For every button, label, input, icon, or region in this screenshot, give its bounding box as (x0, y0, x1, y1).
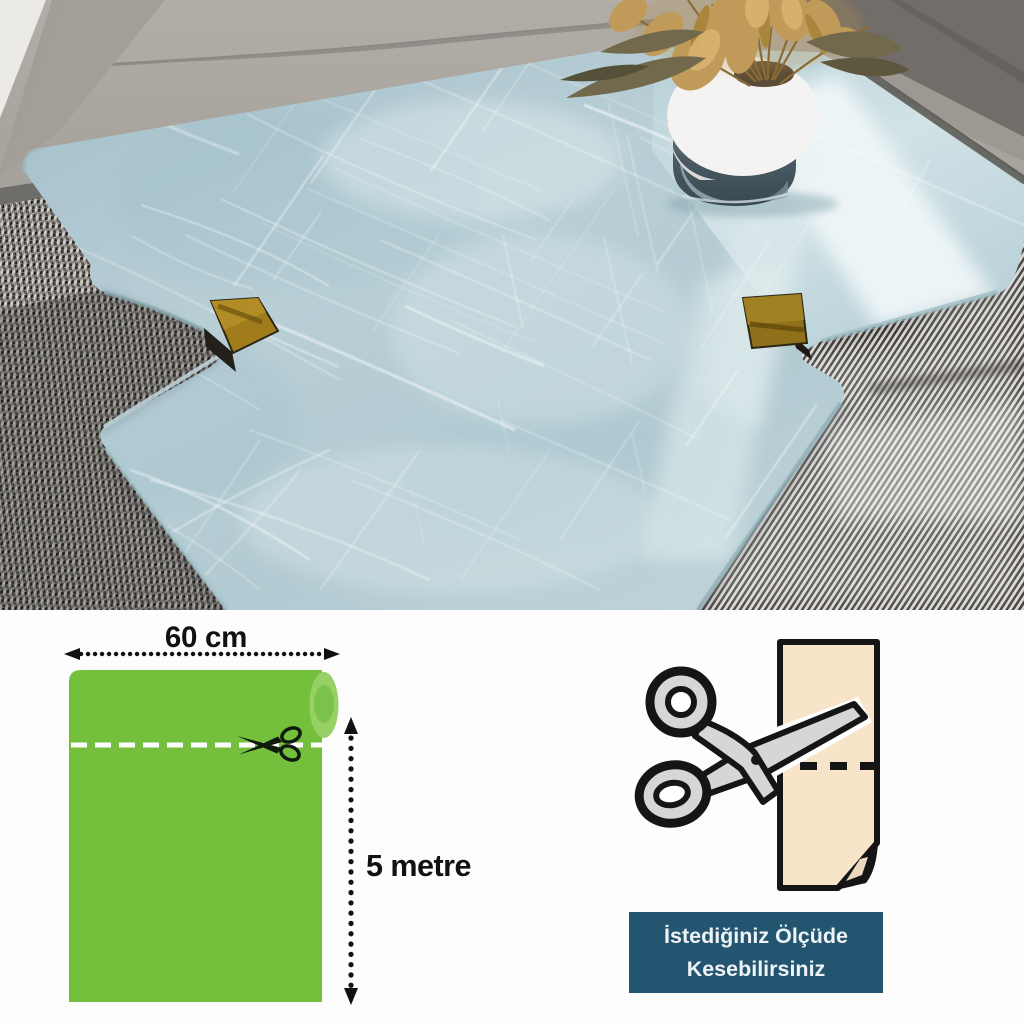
svg-text:60 cm: 60 cm (165, 621, 247, 654)
svg-text:5 metre: 5 metre (366, 849, 471, 883)
